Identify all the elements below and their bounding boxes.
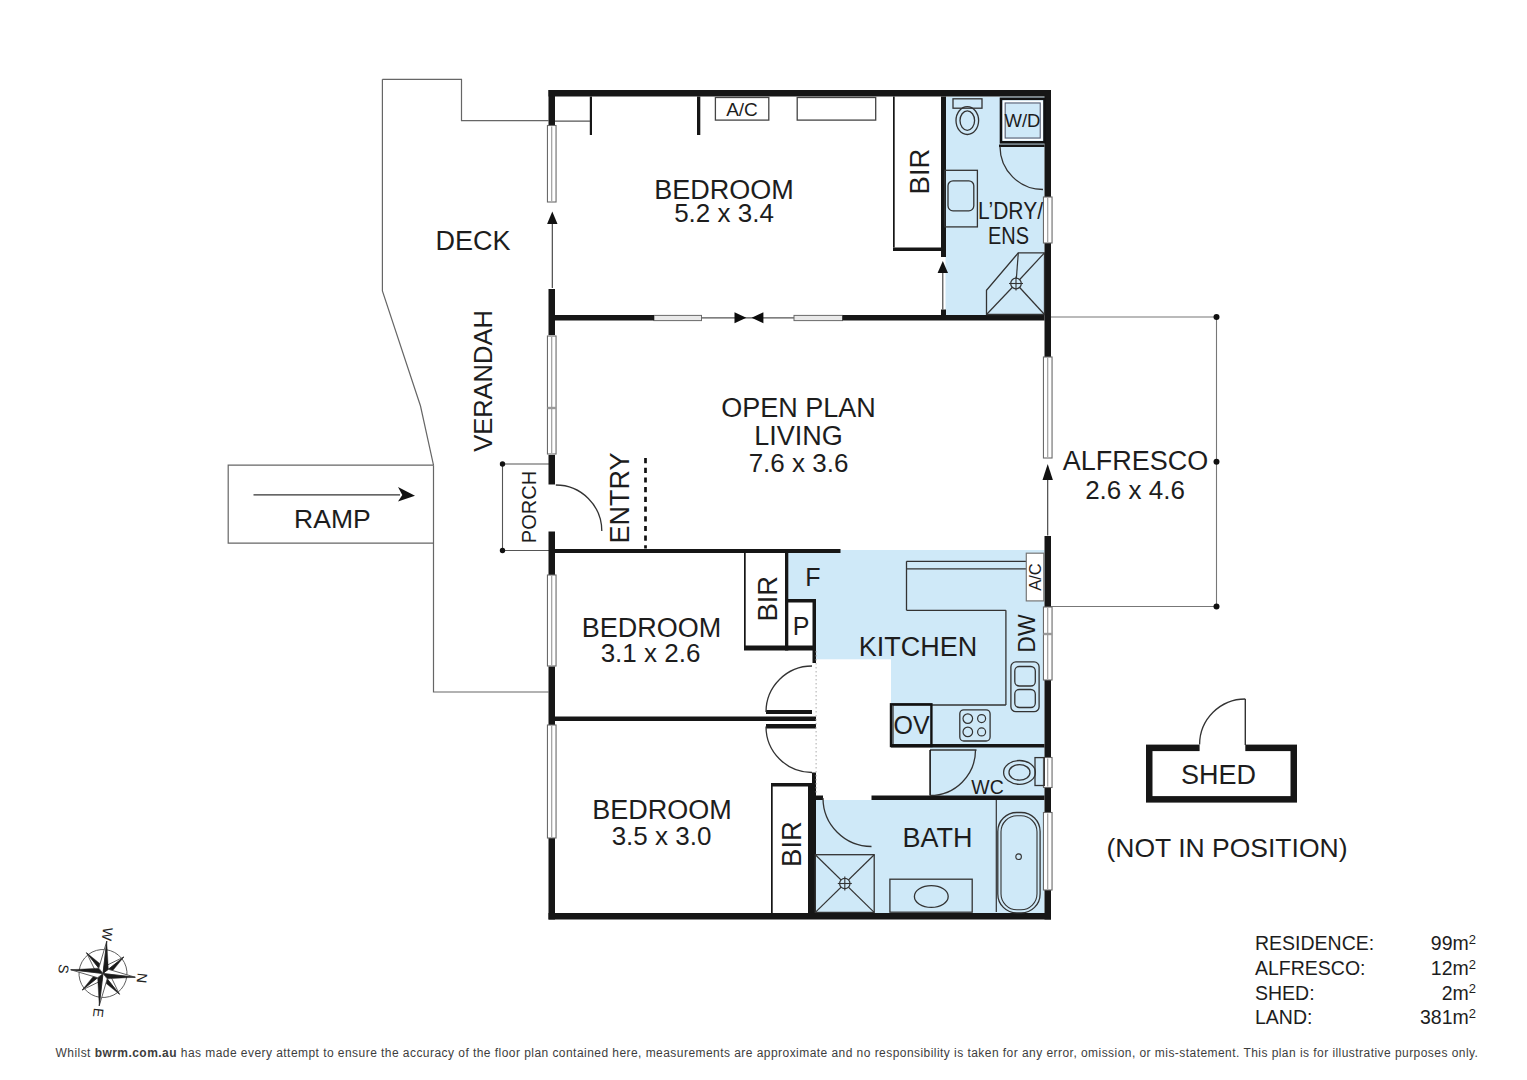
svg-text:OV: OV [893,711,929,739]
svg-text:N: N [134,972,151,984]
svg-text:OPEN PLAN: OPEN PLAN [721,393,876,423]
svg-text:VERANDAH: VERANDAH [469,310,497,452]
svg-text:P: P [793,612,810,640]
svg-text:RESIDENCE:: RESIDENCE: [1255,932,1374,954]
svg-text:F: F [805,563,820,591]
svg-text:SHED:: SHED: [1255,982,1315,1004]
svg-text:3.5 x 3.0: 3.5 x 3.0 [612,821,712,851]
svg-text:381m2: 381m2 [1420,1006,1476,1029]
svg-text:LAND:: LAND: [1255,1006,1312,1028]
svg-text:DW: DW [1014,614,1040,653]
svg-text:Whilst bwrm.com.au has made ev: Whilst bwrm.com.au has made every attemp… [56,1046,1479,1060]
svg-text:S: S [55,963,72,974]
svg-text:3.1 x 2.6: 3.1 x 2.6 [601,638,701,668]
svg-text:BIR: BIR [776,821,807,867]
svg-text:L’DRY/: L’DRY/ [978,197,1043,224]
svg-text:A/C: A/C [1026,563,1044,591]
svg-text:2.6 x 4.6: 2.6 x 4.6 [1085,475,1185,505]
svg-text:7.6 x 3.6: 7.6 x 3.6 [749,448,849,478]
svg-text:A/C: A/C [726,99,758,120]
svg-text:BATH: BATH [902,823,972,853]
svg-text:12m2: 12m2 [1431,957,1476,980]
svg-text:ALFRESCO:: ALFRESCO: [1255,957,1366,979]
svg-text:ENS: ENS [988,222,1029,249]
svg-text:2m2: 2m2 [1442,981,1476,1004]
svg-text:PORCH: PORCH [518,471,540,543]
svg-text:ALFRESCO: ALFRESCO [1063,446,1209,476]
svg-text:DECK: DECK [435,226,510,256]
svg-text:5.2 x 3.4: 5.2 x 3.4 [674,198,774,228]
svg-text:RAMP: RAMP [294,504,371,534]
svg-text:BIR: BIR [904,149,935,195]
svg-text:WC: WC [971,776,1004,798]
svg-text:KITCHEN: KITCHEN [859,632,978,662]
svg-text:99m2: 99m2 [1431,932,1476,955]
svg-text:LIVING: LIVING [754,421,843,451]
svg-text:E: E [90,1007,107,1018]
svg-text:(NOT IN POSITION): (NOT IN POSITION) [1107,833,1348,863]
svg-text:ENTRY: ENTRY [605,452,635,543]
svg-text:SHED: SHED [1181,760,1256,790]
svg-text:W: W [99,927,117,943]
svg-text:BIR: BIR [752,576,783,622]
svg-text:W/D: W/D [1005,110,1041,131]
